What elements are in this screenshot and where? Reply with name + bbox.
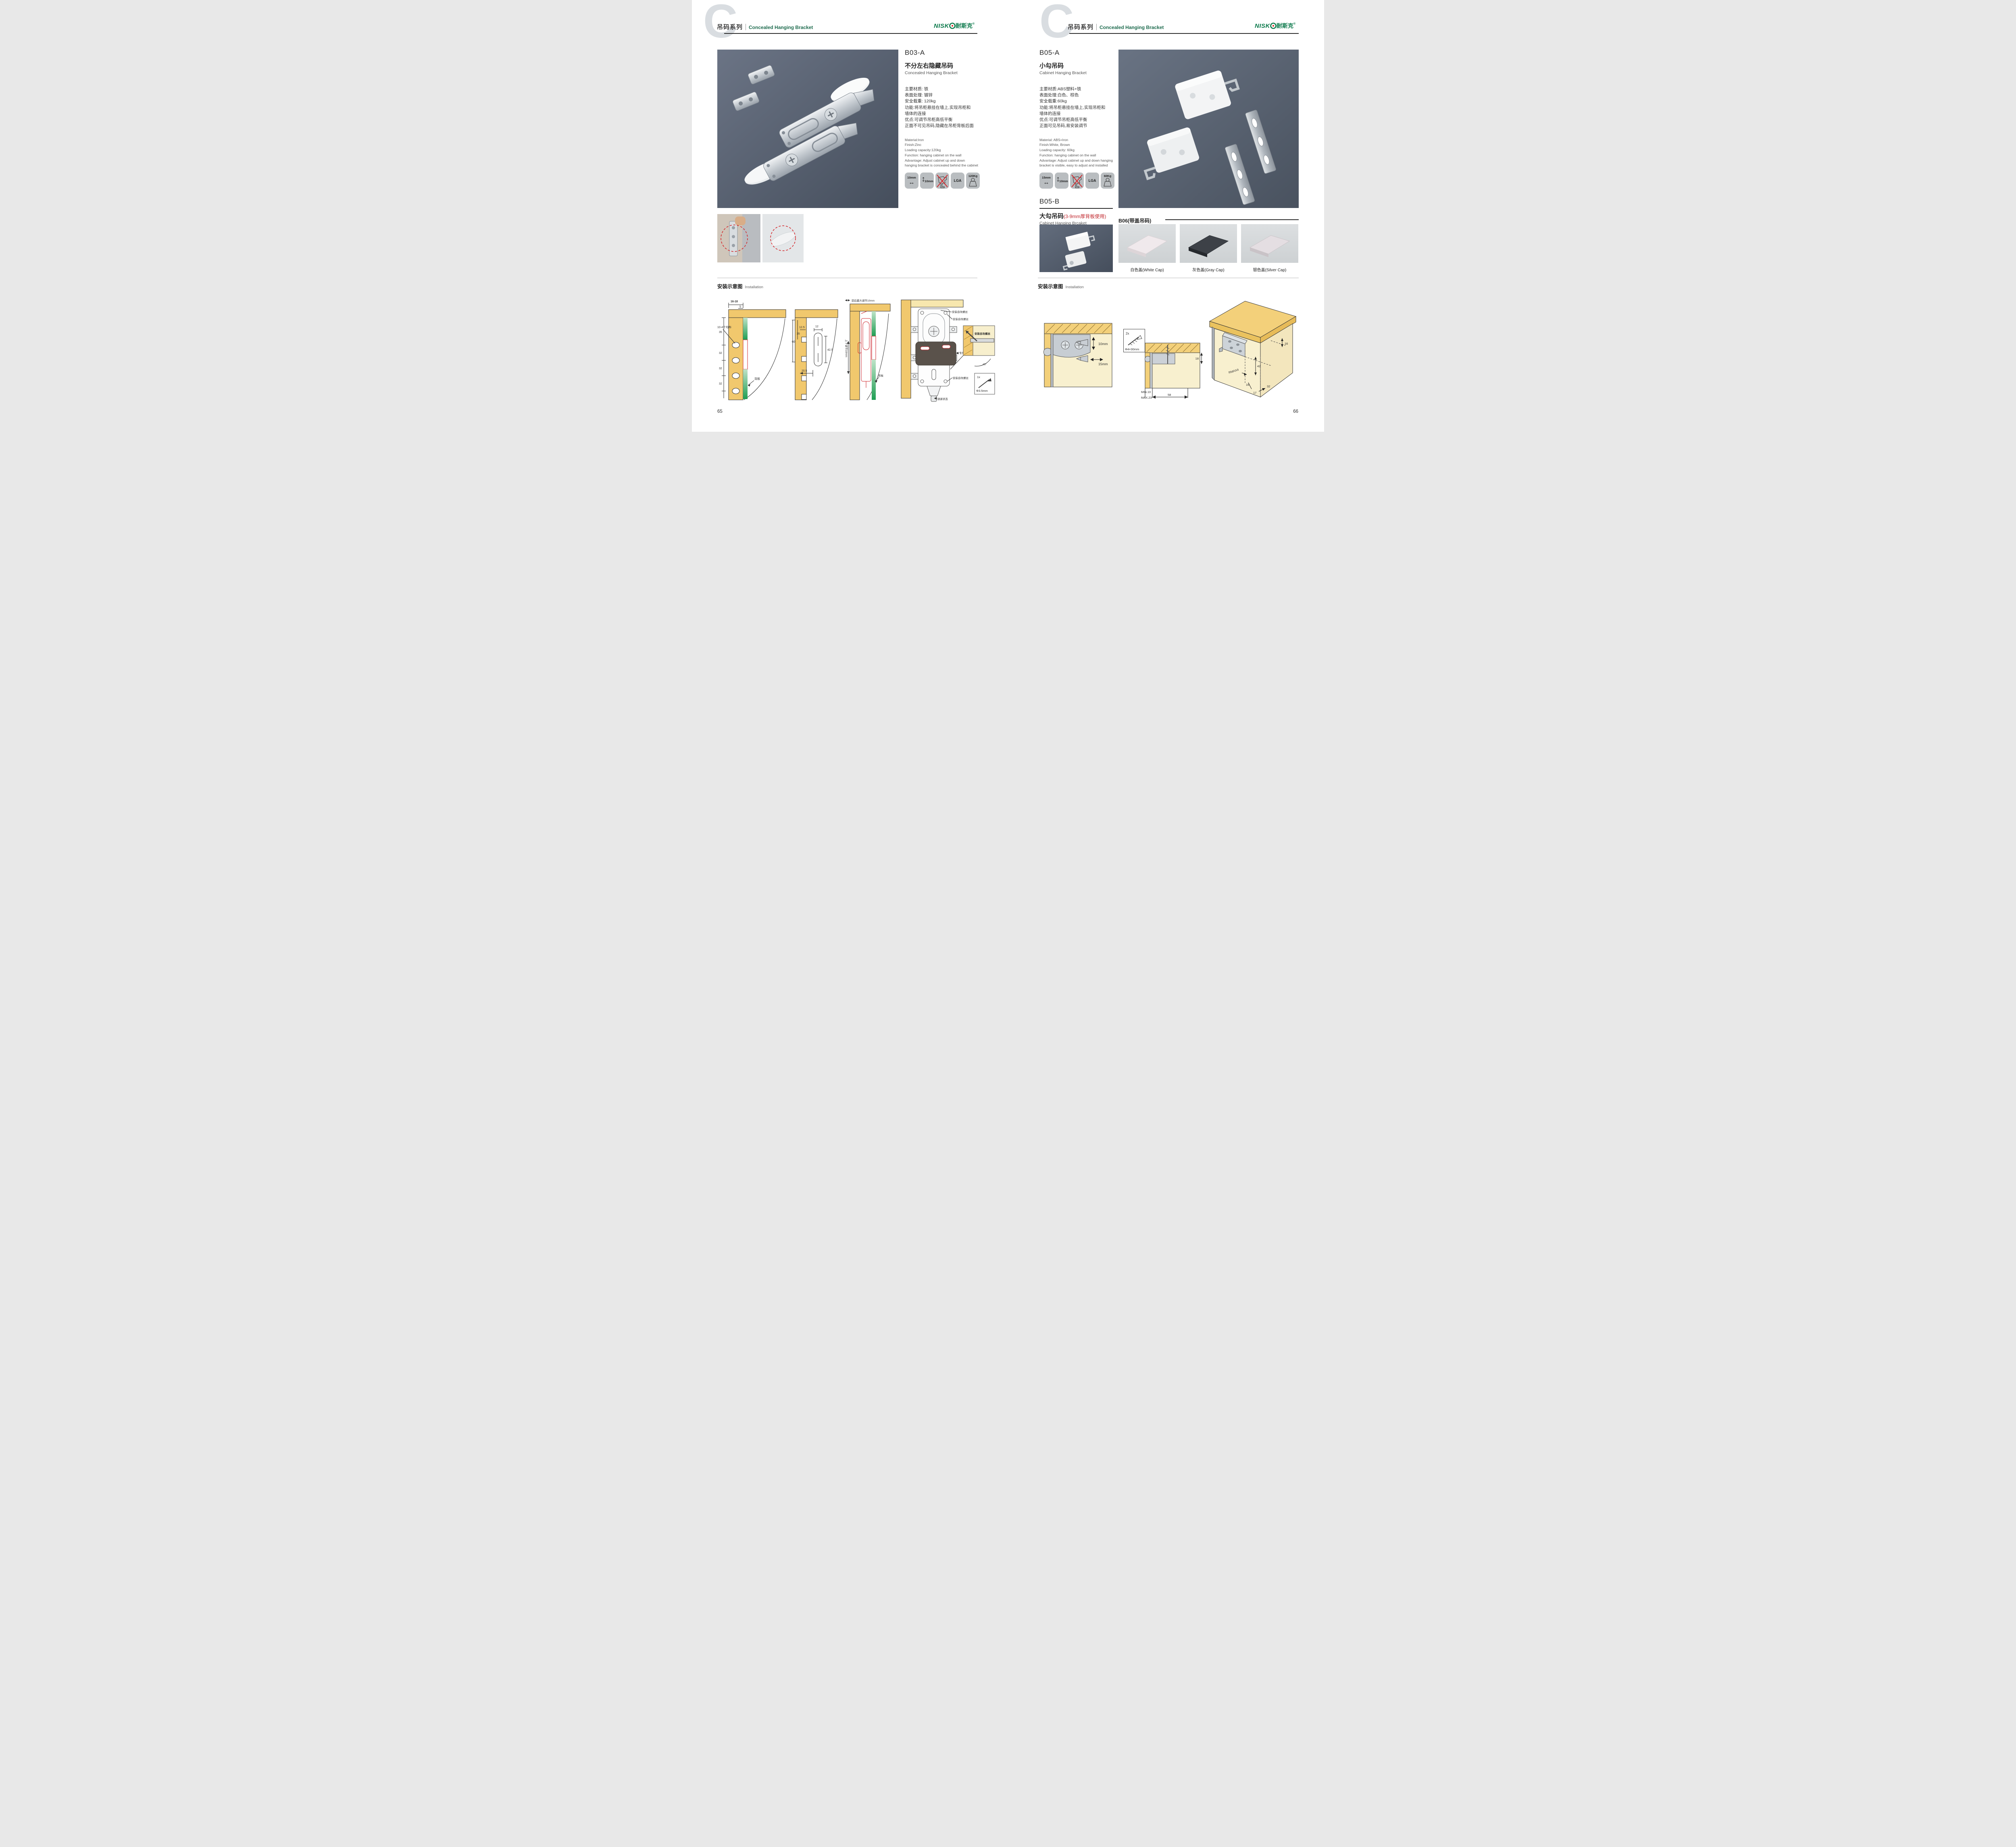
spec-line: 主要材质:ABS塑料+铁 (1039, 86, 1118, 92)
holes-note: 10-4个均布 (717, 325, 731, 329)
spec-line: 安全载重:60kg (1039, 98, 1118, 104)
spec-line: Function: hanging cabinet on the wall (905, 153, 981, 158)
dim-32: 32 (719, 352, 722, 355)
series-title-en: Concealed Hanging Bracket (1100, 25, 1164, 30)
series-header: 吊码系列Concealed Hanging Bracket (717, 23, 813, 31)
dim-42-5: 42.5 (827, 349, 833, 352)
series-title-cn: 吊码系列 (1068, 24, 1093, 31)
specs-cn: 主要材质:ABS塑料+铁 表面处理:白色、棕色 安全载重:60kg 功能:将吊柜… (1039, 86, 1118, 129)
screw-qty: 2x (1126, 332, 1129, 335)
specs-cn: 主要材质: 铁 表面处理: 镀锌 安全载重: 120kg 功能:将吊柜悬挂在墙上… (905, 86, 981, 129)
installation-title-cn: 安装示意图 (1038, 284, 1063, 289)
b06-heading: B06(带盖吊码) (1118, 216, 1151, 225)
catalog-spread: C 吊码系列Concealed Hanging Bracket NISK耐斯克® (692, 0, 1324, 432)
no-drill-icon (1070, 173, 1084, 189)
b05b-product-photo (1039, 225, 1113, 272)
b06-rule (1165, 219, 1299, 220)
product-code: B05-B (1039, 198, 1118, 206)
brand-logo: NISK耐斯克® (934, 22, 975, 30)
dim-16-top: 16 (1285, 342, 1288, 345)
diagram-side-section-3: 前后最大调节10mm 上下调节10mm 背板 (844, 297, 893, 406)
spec-line: Material:Iron (905, 137, 981, 143)
lga-cert-badge: LGA (1085, 173, 1099, 189)
brand-cn: 耐斯克 (1277, 23, 1293, 29)
header-divider (1096, 24, 1097, 30)
product-name-en: Concealed Hanging Bracket (905, 71, 981, 75)
silver-cap-label: 银色盖(Silver Cap) (1241, 266, 1298, 272)
spec-line: Loading capacity:120kg (905, 148, 981, 153)
weight-icon (1101, 173, 1114, 189)
page-number-right: 66 (1274, 409, 1298, 414)
adjust-15mm-label: 15mm (1098, 362, 1108, 366)
dim-12-5: 12.5 (799, 326, 805, 329)
spec-line: Finish:Zinc (905, 142, 981, 148)
b03a-info: B03-A 不分左右隐藏吊码 Concealed Hanging Bracket… (905, 49, 981, 168)
page-right: C 吊码系列Concealed Hanging Bracket NISK耐斯克®… (1008, 0, 1324, 432)
dim-17: 17 (1253, 391, 1256, 395)
header-divider (746, 24, 746, 30)
installation-top-rule (1038, 278, 1299, 278)
dim-min10: MIN.10 (1141, 390, 1151, 394)
dim-35: 35 (797, 333, 800, 335)
header-rule (1069, 33, 1299, 34)
product-code: B03-A (905, 49, 981, 57)
spec-line: Advantage: Adjust cabinet up and down ha… (1039, 158, 1118, 163)
installation-heading: 安装示意图Installation (1038, 282, 1084, 290)
spec-line: Function: hanging cabinet on the wall (1039, 153, 1118, 158)
b05a-feature-badges: 15mm ↔ ↕ 10mm LGA 60Kg (1039, 173, 1114, 189)
brand-latin: NISK (1255, 23, 1270, 29)
dim-12: 12 (815, 325, 818, 328)
no-drill-badge (935, 173, 949, 189)
b05a-product-photo (1118, 50, 1299, 208)
diagram-side-section-2: 60 35 12.5 12 42.5 20.5 (792, 297, 840, 406)
series-title-cn: 吊码系列 (717, 24, 743, 31)
series-title-en: Concealed Hanging Bracket (749, 25, 813, 30)
front-back-adjust-label: 前后最大调节10mm (852, 299, 875, 302)
screw-qty: 1x (977, 375, 980, 379)
locked-state-label: 锁紧状态 (937, 397, 948, 401)
page-number-left: 65 (717, 409, 723, 414)
installation-title-cn: 安装示意图 (717, 284, 743, 289)
no-drill-badge (1070, 173, 1084, 189)
dim-35: 35 (719, 331, 722, 334)
installation-title-en: Installation (745, 285, 763, 289)
gray-cap-label: 灰色盖(Gray Cap) (1180, 266, 1237, 272)
height-adjust-label: 10mm (922, 179, 936, 183)
brand-target-o-icon (949, 23, 956, 29)
brand-latin: NISK (934, 23, 949, 29)
series-header: 吊码系列Concealed Hanging Bracket (1068, 23, 1164, 31)
lga-label: LGA (1085, 179, 1099, 183)
spec-line: 墙体的连接 (905, 111, 981, 117)
product-name-line: 大勾吊码(3-9mm厚背板使用) (1039, 212, 1118, 220)
dim-5: 5 (739, 306, 741, 308)
spec-line: 优点:可调节吊柜高低平衡 (1039, 117, 1118, 123)
spec-line: 正面可见吊码,易安装调节 (1039, 123, 1118, 129)
b05b-info: B05-B 大勾吊码(3-9mm厚背板使用) Cabinet Hanging B… (1039, 198, 1118, 226)
spec-line: Advantage: Adjust cabinet up and down (905, 158, 981, 163)
spec-line: hanging bracket is concealed behind the … (905, 163, 981, 168)
spec-line: 正面不可见吊码,隐藏在吊柜背板后面 (905, 123, 981, 129)
diagram-isometric: 16 42 RMAX4 16 17 32 (1206, 296, 1299, 401)
inset-screw-label: 安装自攻螺丝 (975, 332, 991, 335)
gray-cap-photo (1180, 224, 1237, 263)
dim-32: 32 (719, 383, 722, 385)
spec-line: 表面处理:白色、棕色 (1039, 92, 1118, 98)
b05a-info: B05-A 小勾吊码 Cabinet Hanging Bracket 主要材质:… (1039, 49, 1118, 168)
specs-en: Material:Iron Finish:Zinc Loading capaci… (905, 137, 981, 168)
back-panel-label: 背板 (878, 374, 884, 377)
brand-logo: NISK耐斯克® (1255, 22, 1295, 30)
spec-line: 表面处理: 镀锌 (905, 92, 981, 98)
dim-32: 32 (719, 367, 722, 370)
dim-16-18: 16-18 (731, 300, 738, 303)
header-rule (724, 33, 977, 34)
installation-heading: 安装示意图Installation (717, 282, 763, 290)
product-name-en: Cabinet Hanging Bracket (1039, 71, 1118, 75)
spec-line: 功能:将吊柜悬挂在墙上,实现吊柜和 (1039, 105, 1118, 111)
dim-18: 18 (1195, 357, 1199, 360)
diagram-section-adjust: 10mm 15mm (1042, 309, 1114, 397)
diagram-side-section-1: 16-18 5 35 32 32 32 10-4个均布 背板 (717, 297, 788, 406)
brand-reg-mark: ® (1293, 23, 1295, 25)
brand-target-o-icon (1270, 23, 1277, 29)
b03a-product-photo (717, 50, 898, 208)
spec-line: Material: ABS+Iron (1039, 137, 1118, 143)
spec-line: 安全载重: 120kg (905, 98, 981, 104)
load-capacity-badge: 120Kg (966, 173, 980, 189)
dim-60: 60 (792, 341, 795, 343)
screw-label-2: 安装自攻螺丝 (953, 317, 969, 321)
b05b-rule (1039, 208, 1113, 209)
product-code: B05-A (1039, 49, 1118, 57)
screw-label-3: 安装自攻螺丝 (953, 376, 969, 380)
b03a-cover-thumb (762, 214, 804, 262)
adjust-10mm-label: 10mm (1098, 342, 1108, 346)
page-left: C 吊码系列Concealed Hanging Bracket NISK耐斯克® (692, 0, 1008, 432)
dim-max23: MAX.23 (1141, 396, 1152, 399)
white-cap-photo (1118, 224, 1176, 263)
b03a-feature-badges: 10mm ↔ ↕ 10mm LGA 120Kg (905, 173, 980, 189)
dim-42: 42 (1257, 364, 1260, 368)
product-name-cn: 大勾吊码 (1039, 213, 1064, 220)
product-note-red: (3-9mm厚背板使用) (1064, 214, 1106, 219)
height-adjust-label: 10mm (1057, 179, 1070, 183)
angle-45-label: 45° (983, 363, 987, 366)
specs-en: Material: ABS+Iron Finish:White, Brown L… (1039, 137, 1118, 168)
spec-line: Finish:White, Brown (1039, 142, 1118, 148)
spec-line: 优点:可调节吊柜高低平衡 (905, 117, 981, 123)
diagram-front-view-lock: 安装自攻螺丝 安装自攻螺丝 安装自攻螺丝 专用挂片 锁紧状态 安装自攻螺丝 (896, 294, 996, 407)
diagram-section-dims: 18 MIN.10 MAX.23 58 (1141, 341, 1204, 401)
brand-reg-mark: ® (973, 23, 975, 25)
dim-32: 32 (1267, 385, 1270, 388)
b06-title: B06(带盖吊码) (1118, 218, 1151, 224)
dim-20-5: 20.5 (802, 370, 807, 372)
height-adjust-badge: ↕ 10mm (920, 173, 934, 189)
silver-cap-photo (1241, 224, 1298, 263)
height-adjust-badge: ↕ 10mm (1055, 173, 1068, 189)
spec-line: 功能:将吊柜悬挂在墙上,实现吊柜和 (905, 105, 981, 111)
product-name-cn: 不分左右隐藏吊码 (905, 61, 981, 70)
screw-diameter: Φ4×30mm (1125, 347, 1139, 351)
b03a-install-thumb (717, 214, 760, 262)
lga-cert-badge: LGA (951, 173, 964, 189)
spec-line: 墙体的连接 (1039, 111, 1118, 117)
weight-icon (966, 173, 980, 189)
up-down-adjust-label: 上下调节10mm (845, 339, 848, 357)
spec-line: Loading capacity: 60kg (1039, 148, 1118, 153)
spec-line: 主要材质: 铁 (905, 86, 981, 92)
back-panel-label: 背板 (754, 377, 760, 381)
screw-diameter: Φ3.5mm (976, 389, 988, 393)
white-cap-label: 白色盖(White Cap) (1118, 266, 1176, 272)
installation-top-rule (717, 278, 977, 278)
load-capacity-badge: 60Kg (1101, 173, 1114, 189)
spec-line: bracket is visible, easy to adjust and i… (1039, 163, 1118, 168)
no-drill-icon (935, 173, 949, 189)
screw-label-1: 安装自攻螺丝 (952, 310, 968, 314)
brand-cn: 耐斯克 (956, 23, 973, 29)
installation-title-en: Installation (1066, 285, 1084, 289)
product-name-cn: 小勾吊码 (1039, 61, 1118, 70)
lga-label: LGA (951, 179, 964, 183)
dim-58: 58 (1168, 393, 1171, 397)
